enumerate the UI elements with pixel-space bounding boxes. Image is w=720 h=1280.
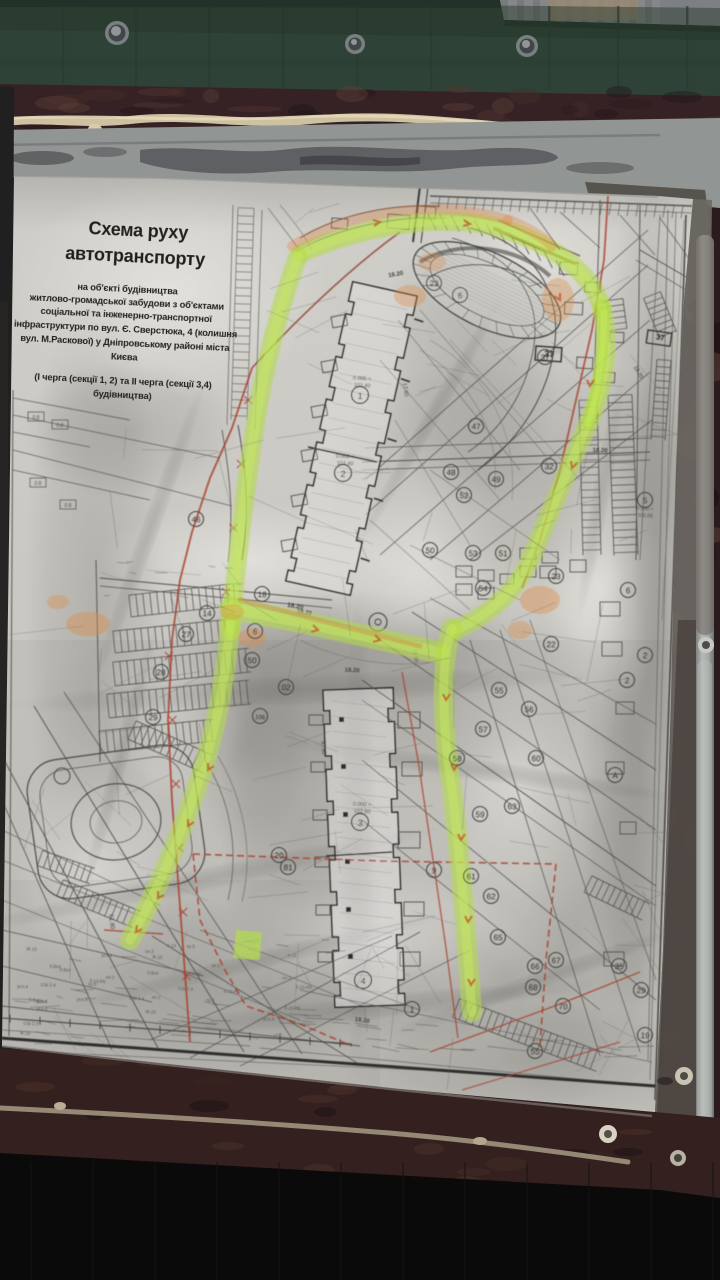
svg-text:50: 50 — [425, 546, 435, 555]
svg-text:4: 4 — [360, 976, 366, 986]
svg-text:02: 02 — [281, 683, 291, 692]
svg-text:кл 2: кл 2 — [145, 949, 154, 954]
svg-text:55: 55 — [494, 686, 504, 695]
svg-text:66: 66 — [530, 962, 540, 971]
svg-text:32: 32 — [544, 462, 554, 471]
svg-text:0.000 =: 0.000 = — [636, 506, 653, 513]
svg-text:46: 46 — [191, 515, 201, 524]
svg-text:67: 67 — [551, 956, 561, 965]
svg-text:Ж.15: Ж.15 — [152, 954, 163, 960]
svg-text:тр.5: тр.5 — [186, 944, 195, 949]
svg-text:0.8: 0.8 — [35, 481, 42, 487]
svg-text:3: 3 — [357, 818, 363, 828]
svg-text:23: 23 — [551, 572, 561, 581]
svg-text:кл 2: кл 2 — [152, 994, 161, 999]
svg-text:0.8х4: 0.8х4 — [60, 967, 72, 973]
svg-text:68: 68 — [528, 983, 538, 992]
svg-text:0.8: 0.8 — [57, 423, 64, 429]
svg-text:кл 2: кл 2 — [211, 963, 220, 968]
svg-text:65: 65 — [493, 933, 503, 942]
svg-text:0.000 =: 0.000 = — [353, 802, 372, 809]
svg-text:кл 2: кл 2 — [106, 975, 115, 980]
svg-text:19: 19 — [640, 1031, 650, 1040]
svg-text:50: 50 — [247, 656, 257, 665]
svg-text:усл.4: усл.4 — [36, 1006, 48, 1012]
svg-text:5.13-Р5: 5.13-Р5 — [284, 1005, 300, 1011]
svg-text:62: 62 — [486, 892, 496, 901]
svg-text:35: 35 — [614, 962, 624, 971]
svg-text:Ж.15: Ж.15 — [145, 1009, 156, 1015]
svg-text:29: 29 — [636, 986, 646, 995]
svg-text:усл.4: усл.4 — [263, 1016, 275, 1022]
svg-text:2: 2 — [340, 469, 346, 479]
svg-text:усл.4: усл.4 — [17, 984, 29, 990]
svg-text:0.8х4: 0.8х4 — [50, 964, 62, 970]
svg-text:52: 52 — [459, 491, 469, 500]
svg-text:кл 2: кл 2 — [282, 975, 291, 980]
svg-text:55: 55 — [530, 1047, 540, 1056]
svg-text:20: 20 — [274, 851, 284, 860]
svg-text:63: 63 — [507, 802, 517, 811]
svg-text:53: 53 — [468, 549, 478, 558]
svg-text:102.40: 102.40 — [353, 383, 370, 390]
svg-text:102.00: 102.00 — [637, 513, 653, 520]
svg-text:47: 47 — [471, 422, 481, 431]
svg-text:23: 23 — [429, 279, 439, 288]
svg-text:28: 28 — [156, 668, 166, 677]
svg-text:102.40: 102.40 — [336, 461, 353, 468]
svg-text:СШ 2.4: СШ 2.4 — [23, 1021, 39, 1027]
svg-text:п.13: п.13 — [167, 943, 176, 948]
svg-text:0.8х4: 0.8х4 — [147, 970, 159, 976]
svg-text:Ж.15: Ж.15 — [26, 946, 37, 952]
svg-text:14: 14 — [202, 609, 212, 618]
svg-text:0.8: 0.8 — [65, 503, 72, 509]
svg-text:49: 49 — [491, 475, 501, 484]
svg-text:102.50: 102.50 — [353, 809, 370, 816]
svg-text:СШ 2.4: СШ 2.4 — [41, 982, 57, 988]
svg-text:60: 60 — [531, 754, 541, 763]
svg-text:70: 70 — [558, 1002, 568, 1011]
svg-text:Києва: Києва — [111, 351, 139, 362]
svg-text:тр.5: тр.5 — [88, 982, 97, 987]
svg-text:56: 56 — [524, 705, 534, 714]
svg-text:1: 1 — [357, 391, 363, 401]
svg-text:Ж.15: Ж.15 — [20, 1030, 31, 1036]
svg-text:усл.4: усл.4 — [77, 997, 89, 1003]
svg-text:48: 48 — [446, 468, 456, 477]
svg-text:0.8: 0.8 — [33, 415, 40, 421]
svg-text:58: 58 — [452, 754, 462, 763]
svg-text:0.000 =: 0.000 = — [353, 376, 372, 383]
svg-text:59: 59 — [475, 810, 485, 819]
svg-text:0.000 =: 0.000 = — [336, 454, 355, 461]
svg-text:5.13-Р5: 5.13-Р5 — [295, 984, 311, 990]
svg-text:22: 22 — [546, 640, 556, 649]
svg-text:106: 106 — [255, 715, 266, 722]
svg-text:51: 51 — [498, 549, 508, 558]
svg-text:57: 57 — [478, 725, 488, 734]
svg-text:18.20: 18.20 — [344, 668, 360, 675]
svg-text:81: 81 — [283, 863, 293, 872]
svg-text:37: 37 — [655, 332, 666, 342]
svg-text:усл.4: усл.4 — [101, 953, 113, 959]
svg-text:37: 37 — [540, 353, 550, 362]
svg-text:18.20: 18.20 — [592, 448, 608, 455]
svg-text:0.8х4: 0.8х4 — [36, 998, 48, 1004]
svg-text:СШ 2.4: СШ 2.4 — [129, 995, 145, 1001]
svg-text:61: 61 — [466, 872, 476, 881]
svg-text:29: 29 — [148, 713, 158, 722]
svg-text:27: 27 — [181, 630, 191, 639]
svg-text:54: 54 — [478, 584, 488, 593]
svg-text:18: 18 — [257, 590, 267, 599]
